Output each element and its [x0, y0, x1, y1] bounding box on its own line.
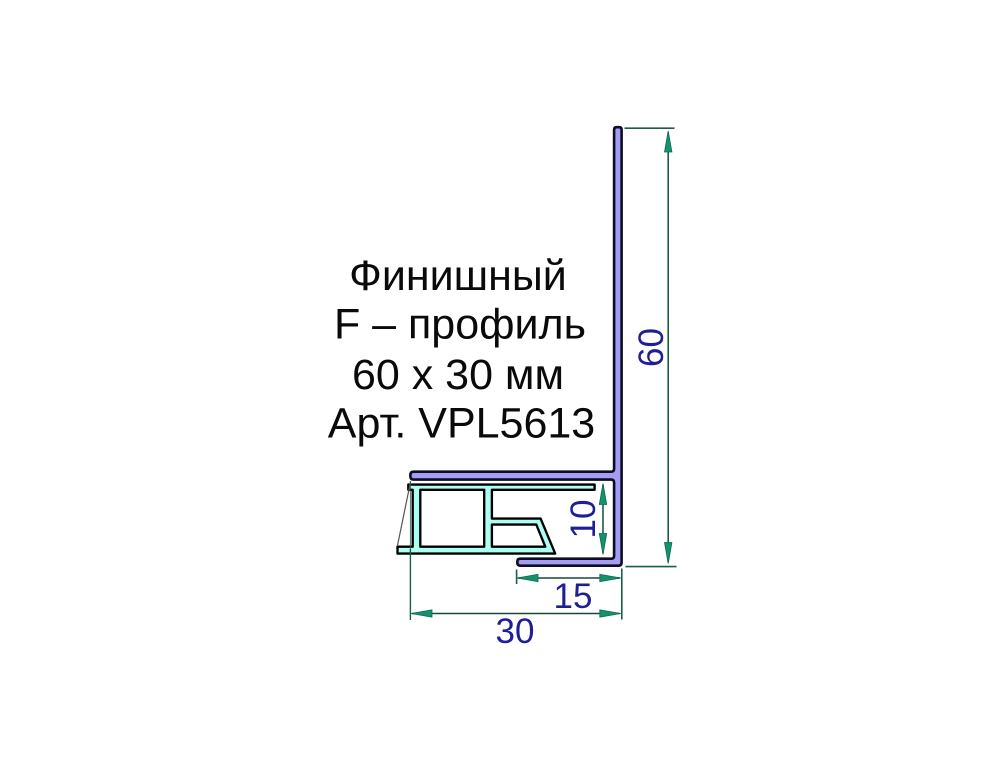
svg-text:F – профиль: F – профиль	[334, 301, 586, 349]
svg-text:10: 10	[564, 500, 603, 539]
svg-text:Арт. VPL5613: Арт. VPL5613	[328, 400, 595, 448]
svg-text:60: 60	[632, 328, 671, 367]
svg-text:15: 15	[554, 577, 593, 616]
svg-text:Финишный: Финишный	[349, 252, 567, 300]
svg-text:60 x 30 мм: 60 x 30 мм	[352, 351, 564, 399]
svg-text:30: 30	[496, 612, 535, 651]
